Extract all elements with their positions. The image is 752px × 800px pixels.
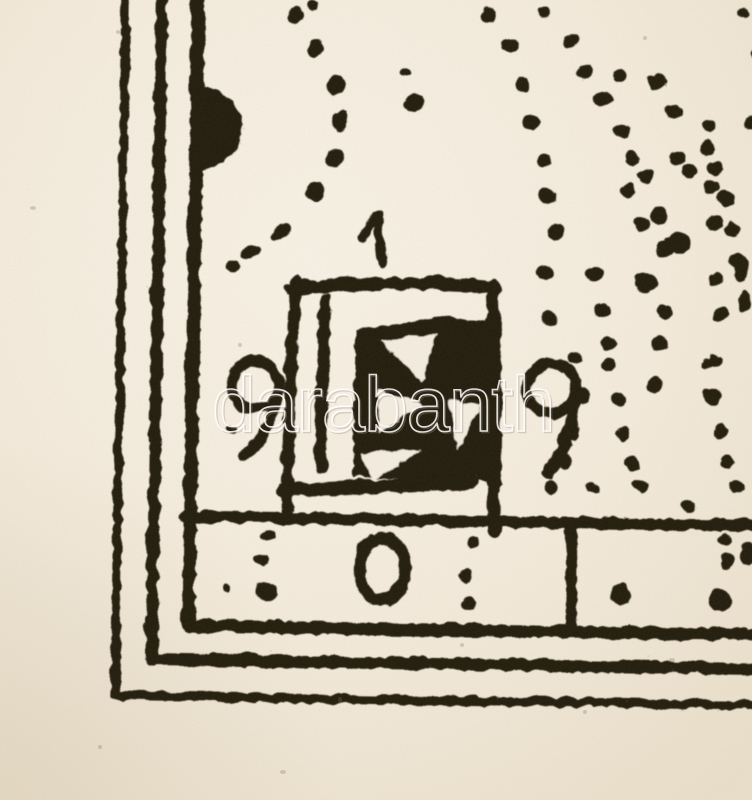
photo-stage: darabanth darabanth [0, 0, 752, 800]
stamp-corner-photo: darabanth darabanth [0, 0, 752, 800]
watermark: darabanth darabanth [212, 360, 556, 450]
watermark-text: darabanth [212, 360, 554, 448]
